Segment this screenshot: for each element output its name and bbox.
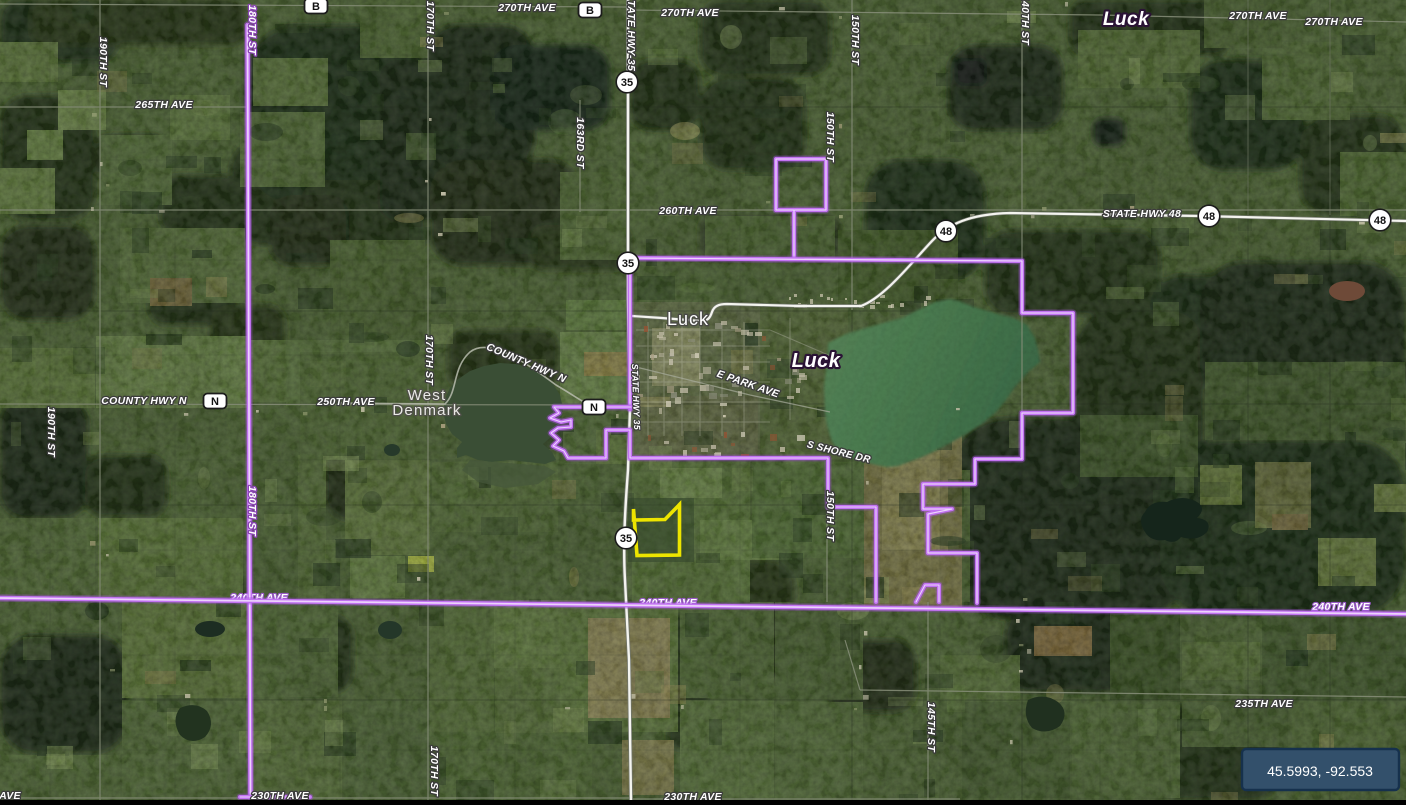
svg-text:150TH ST: 150TH ST bbox=[824, 491, 836, 543]
svg-text:270TH AVE: 270TH AVE bbox=[660, 7, 719, 19]
svg-text:270TH AVE: 270TH AVE bbox=[1228, 10, 1287, 22]
svg-text:190TH ST: 190TH ST bbox=[97, 37, 109, 89]
svg-text:48: 48 bbox=[940, 226, 952, 238]
svg-text:N: N bbox=[211, 396, 219, 408]
svg-text:145TH ST: 145TH ST bbox=[925, 702, 937, 754]
svg-text:STATE HWY-35: STATE HWY-35 bbox=[625, 0, 637, 71]
svg-text:190TH ST: 190TH ST bbox=[45, 407, 57, 459]
svg-text:140TH ST: 140TH ST bbox=[1019, 0, 1031, 46]
svg-text:48: 48 bbox=[1374, 215, 1386, 227]
svg-text:265TH AVE: 265TH AVE bbox=[134, 99, 193, 111]
svg-text:Luck: Luck bbox=[667, 309, 709, 329]
svg-text:235TH AVE: 235TH AVE bbox=[1234, 698, 1293, 710]
svg-text:150TH ST: 150TH ST bbox=[824, 112, 836, 164]
svg-text:AVE: AVE bbox=[0, 790, 22, 800]
svg-text:45.5993, -92.553: 45.5993, -92.553 bbox=[1267, 763, 1373, 779]
svg-text:35: 35 bbox=[620, 533, 632, 545]
svg-text:260TH AVE: 260TH AVE bbox=[658, 205, 717, 217]
svg-text:35: 35 bbox=[621, 77, 633, 89]
svg-text:230TH AVE: 230TH AVE bbox=[250, 790, 309, 800]
svg-text:Luck: Luck bbox=[1103, 9, 1150, 30]
svg-text:Denmark: Denmark bbox=[392, 402, 461, 419]
svg-text:N: N bbox=[590, 402, 598, 414]
svg-text:150TH ST: 150TH ST bbox=[849, 15, 861, 67]
svg-text:230TH AVE: 230TH AVE bbox=[663, 791, 722, 800]
svg-text:180TH ST: 180TH ST bbox=[246, 486, 258, 538]
svg-text:170TH ST: 170TH ST bbox=[423, 335, 435, 387]
svg-text:48: 48 bbox=[1203, 211, 1215, 223]
svg-text:163RD ST: 163RD ST bbox=[574, 117, 586, 170]
svg-text:250TH AVE: 250TH AVE bbox=[316, 396, 375, 408]
svg-text:Luck: Luck bbox=[792, 350, 841, 372]
svg-text:COUNTY HWY N: COUNTY HWY N bbox=[101, 395, 187, 407]
svg-text:STATE HWY 48: STATE HWY 48 bbox=[1103, 208, 1181, 220]
svg-text:270TH AVE: 270TH AVE bbox=[497, 2, 556, 14]
svg-text:170TH ST: 170TH ST bbox=[428, 746, 440, 798]
svg-text:270TH AVE: 270TH AVE bbox=[1304, 16, 1363, 28]
svg-text:B: B bbox=[312, 1, 320, 13]
svg-text:B: B bbox=[586, 5, 594, 17]
svg-text:35: 35 bbox=[622, 258, 634, 270]
svg-text:170TH ST: 170TH ST bbox=[424, 1, 436, 53]
svg-text:180TH ST: 180TH ST bbox=[246, 5, 258, 57]
